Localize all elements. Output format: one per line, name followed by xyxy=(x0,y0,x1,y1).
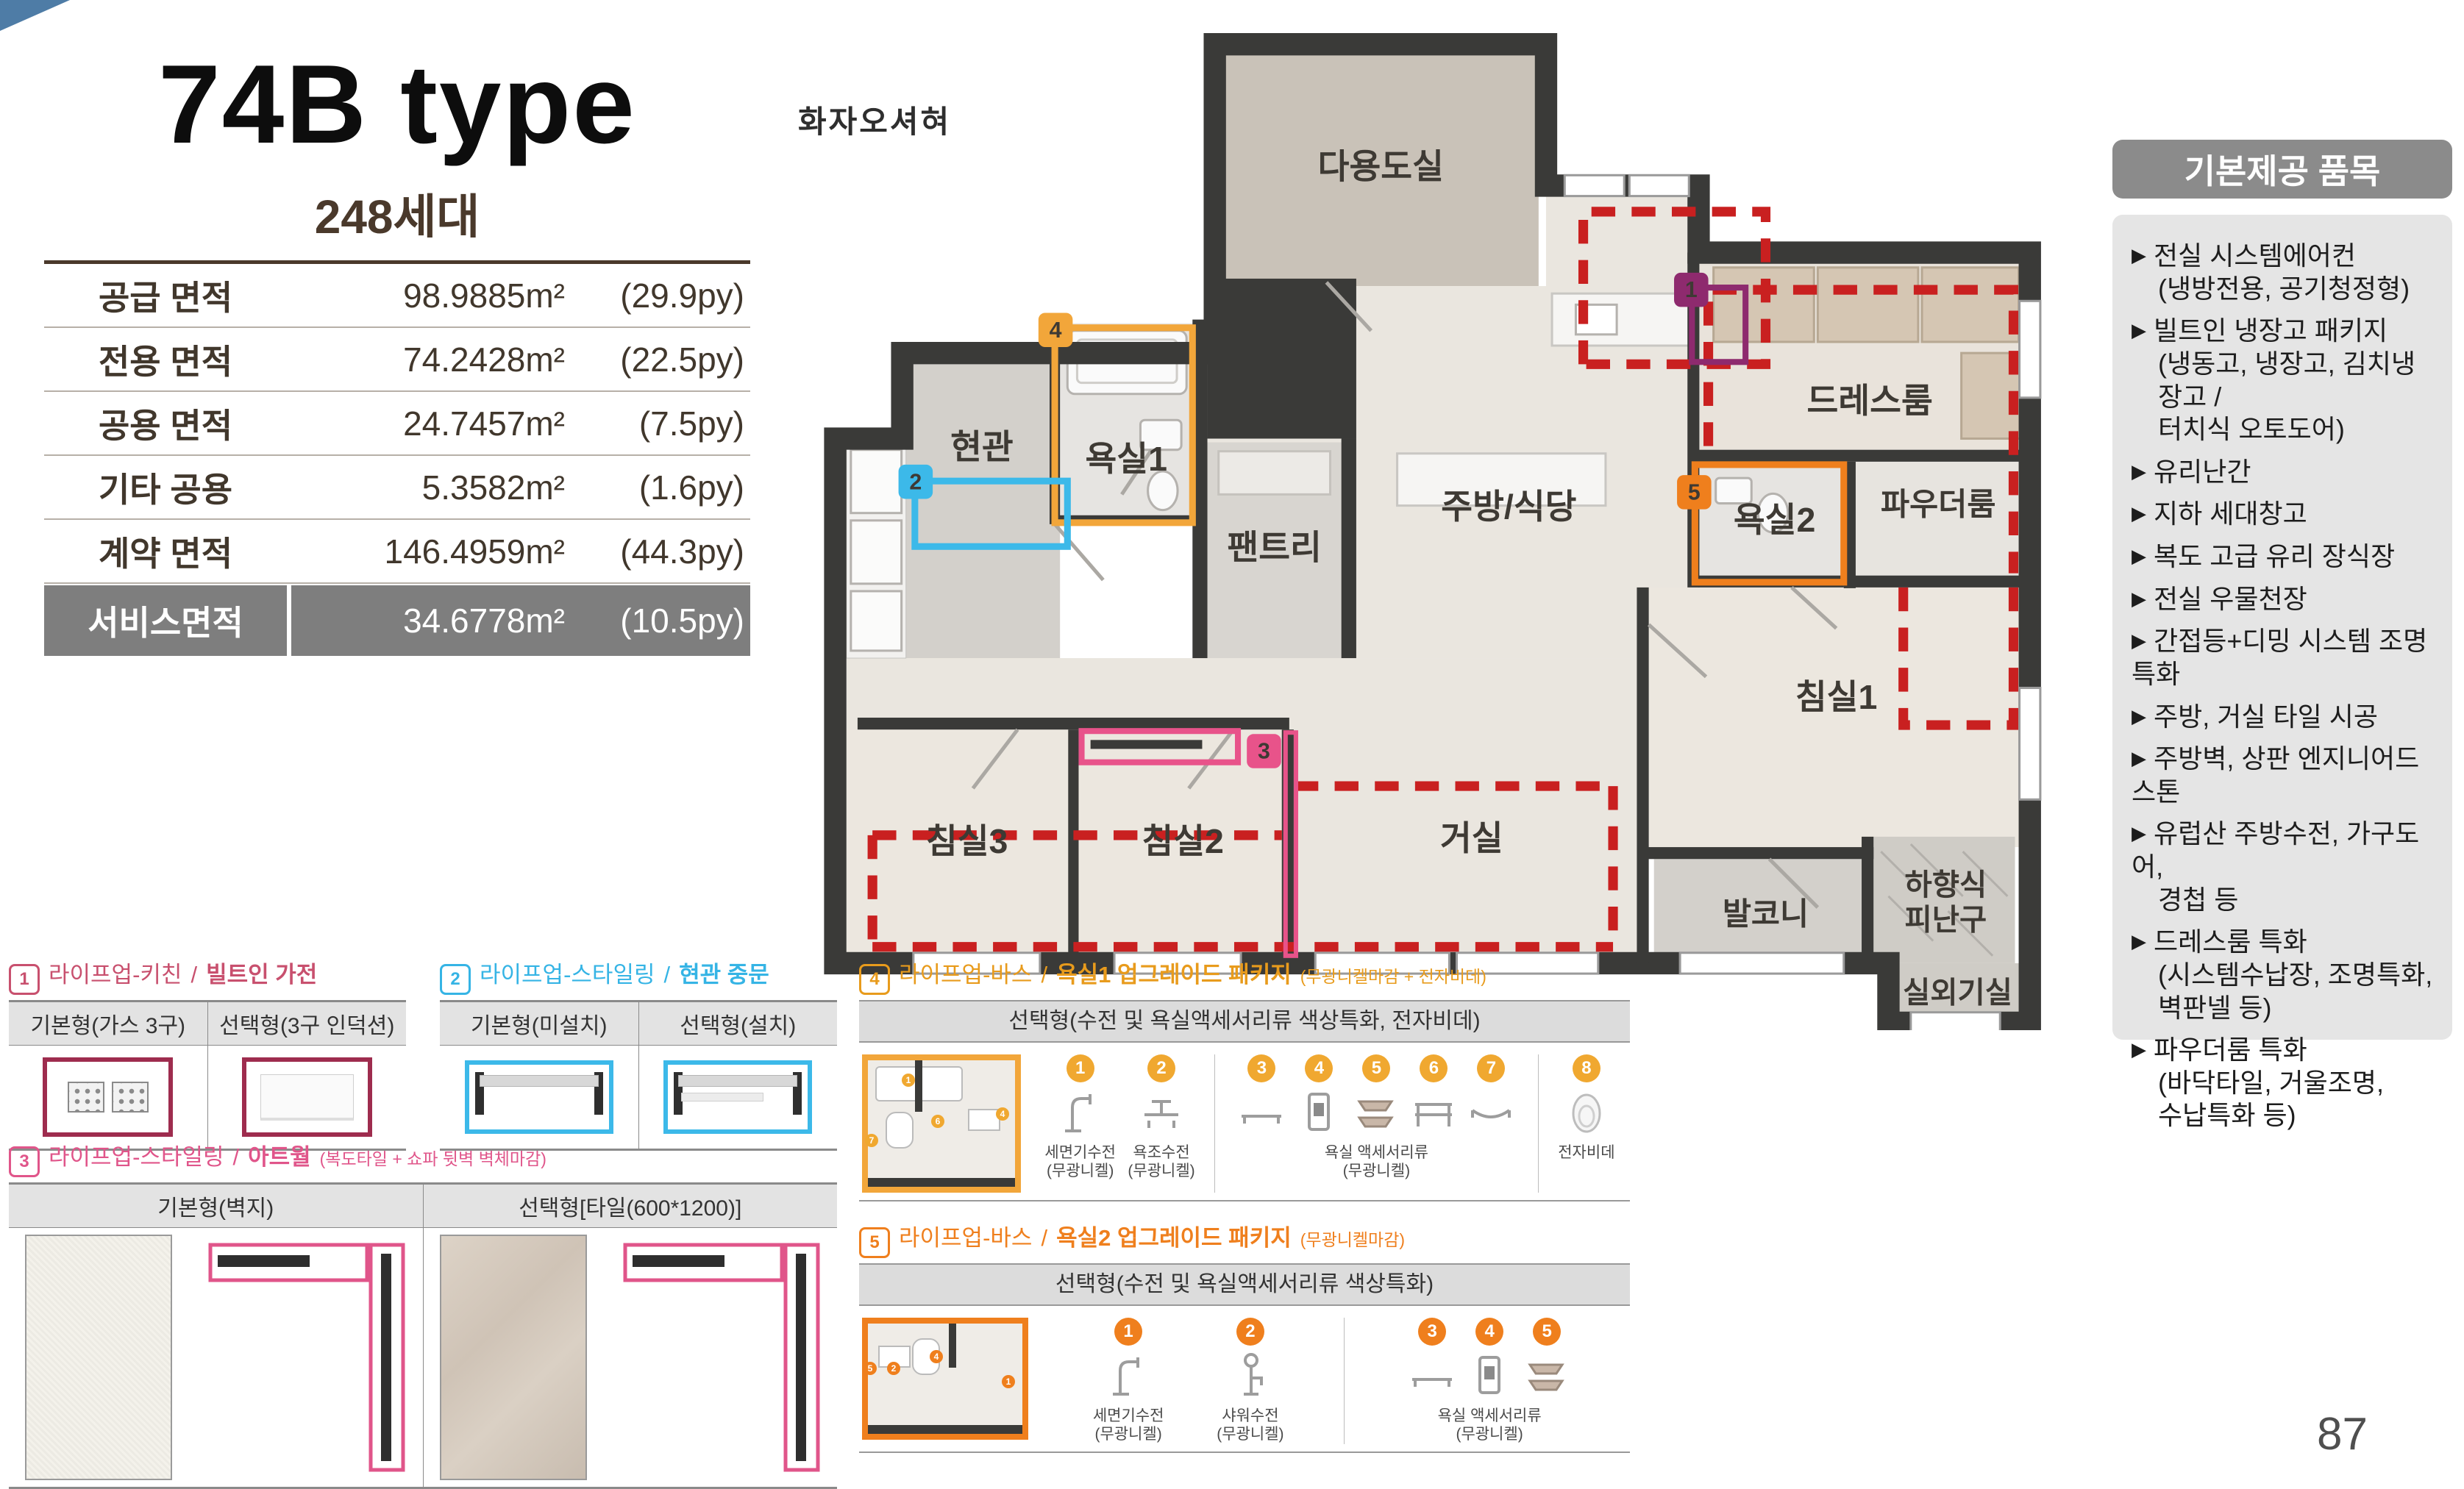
item-text: 유리난간 xyxy=(2154,457,2251,487)
tub-faucet-icon xyxy=(1134,1085,1189,1140)
option-columns: 기본형(미설치) 선택형(설치) xyxy=(440,1000,837,1046)
page-title: 74B type xyxy=(44,40,750,169)
triangle-bullet-icon: ▶ xyxy=(2132,545,2146,567)
row-label: 기타 공용 xyxy=(44,463,287,512)
section-note: (무광니켈마감 + 전자비데) xyxy=(1300,963,1486,988)
item-number: 2 xyxy=(1147,1054,1175,1082)
divider xyxy=(1538,1054,1539,1193)
item-label: 세면기수전 xyxy=(1093,1407,1164,1424)
shower-faucet-icon xyxy=(1223,1349,1278,1403)
option-images xyxy=(440,1046,837,1151)
section-header: 5 라이프업-바스 / 욕실2 업그레이드 패키지 (무광니켈마감) xyxy=(859,1219,1630,1256)
section-category: 라이프업-바스 xyxy=(899,956,1032,989)
corner-shelf-icon xyxy=(1349,1085,1403,1140)
section-category: 라이프업-키친 xyxy=(49,956,182,989)
room-label-bed1: 침실1 xyxy=(1795,678,1878,716)
room-label-bed2: 침실2 xyxy=(1142,822,1224,860)
item-number: 2 xyxy=(1236,1318,1264,1346)
section-header: 2 라이프업-스타일링 / 현관 중문 xyxy=(440,956,837,993)
row-m2: 146.4959m² xyxy=(287,532,575,571)
room-label-powder: 파우더룸 xyxy=(1881,488,1995,523)
item-label-sub: (무광니켈) xyxy=(1047,1163,1114,1179)
included-items-header: 기본제공 품목 xyxy=(2112,140,2452,199)
item-text: 수납특화 등) xyxy=(2132,1099,2433,1132)
section-category: 라이프업-스타일링 xyxy=(480,956,655,989)
basin-faucet-icon xyxy=(1053,1085,1108,1140)
bidet-icon xyxy=(1559,1085,1614,1140)
option-section-entry-door: 2 라이프업-스타일링 / 현관 중문 기본형(미설치) 선택형(설치) xyxy=(440,956,837,1151)
list-item: ▶파우더룸 특화 (바닥타일, 거울조명, 수납특화 등) xyxy=(2132,1034,2433,1132)
product-item: 2 샤워수전 (무광니켈) xyxy=(1217,1318,1283,1444)
item-number: 5 xyxy=(1533,1318,1561,1346)
item-number: 6 xyxy=(1420,1054,1448,1082)
gas-cooktop-image xyxy=(43,1057,173,1137)
badge-4: 4 xyxy=(1050,318,1062,343)
badge-2: 2 xyxy=(909,470,922,494)
item-text: 지하 세대창고 xyxy=(2154,499,2307,529)
item-number: 5 xyxy=(1362,1054,1390,1082)
item-number: 7 xyxy=(1477,1054,1505,1082)
item-text: (바닥타일, 거울조명, xyxy=(2132,1067,2433,1100)
option-section-kitchen: 1 라이프업-키친 / 빌트인 가전 기본형(가스 3구) 선택형(3구 인덕션… xyxy=(9,956,406,1151)
separator: / xyxy=(232,1144,239,1171)
list-item: ▶전실 우물천장 xyxy=(2132,583,2433,616)
table-row-service: 서비스면적 34.6778m² (10.5py) xyxy=(44,585,750,656)
section-number-badge: 3 xyxy=(9,1146,40,1177)
row-py: (10.5py) xyxy=(575,601,750,640)
section-name: 욕실1 업그레이드 패키지 xyxy=(1056,956,1292,989)
product-items: 1 세면기수전 (무광니켈) 2 욕조수전 (무광니켈) 3 xyxy=(1033,1054,1627,1193)
included-items-panel: ▶전실 시스템에어컨 (냉방전용, 공기청정형) ▶빌트인 냉장고 패키지 (냉… xyxy=(2112,215,2452,1040)
list-item: ▶주방벽, 상판 엔지니어드 스톤 xyxy=(2132,743,2433,808)
room-label-balcony: 발코니 xyxy=(1723,897,1809,932)
paper-holder-icon xyxy=(1292,1085,1346,1140)
triangle-bullet-icon: ▶ xyxy=(2132,705,2146,727)
triangle-bullet-icon: ▶ xyxy=(2132,502,2146,524)
item-text: (냉동고, 냉장고, 김치냉장고 / xyxy=(2132,348,2433,413)
product-item: 8 전자비데 xyxy=(1558,1054,1614,1163)
item-label: 욕조수전 xyxy=(1133,1144,1189,1161)
towel-bar-icon xyxy=(1234,1085,1289,1140)
room-label-bath1: 욕실1 xyxy=(1085,440,1167,478)
section-number-badge: 1 xyxy=(9,964,40,995)
option-section-artwall: 3 라이프업-스타일링 / 아트월 (복도타일 + 쇼파 뒷벽 벽체마감) 기본… xyxy=(9,1138,837,1489)
list-item: ▶전실 시스템에어컨 (냉방전용, 공기청정형) xyxy=(2132,240,2433,305)
item-label: 샤워수전 xyxy=(1222,1407,1278,1424)
item-text: 유럽산 주방수전, 가구도어, xyxy=(2132,818,2419,882)
room-label-utility: 다용도실 xyxy=(1318,147,1444,185)
section-name: 현관 중문 xyxy=(679,956,769,989)
triangle-bullet-icon: ▶ xyxy=(2132,822,2146,844)
list-item: ▶복도 고급 유리 장식장 xyxy=(2132,540,2433,574)
item-text: 복도 고급 유리 장식장 xyxy=(2154,541,2395,571)
item-text: 주방, 거실 타일 시공 xyxy=(2154,701,2378,732)
list-item: ▶유리난간 xyxy=(2132,456,2433,489)
towel-ring-icon xyxy=(1464,1085,1518,1140)
choice-bar: 선택형(수전 및 욕실액세서리류 색상특화, 전자비데) xyxy=(859,1000,1630,1043)
area-table: 공급 면적 98.9885m² (29.9py) 전용 면적 74.2428m²… xyxy=(44,260,750,656)
item-text: 터치식 오토도어) xyxy=(2132,413,2433,446)
triangle-bullet-icon: ▶ xyxy=(2132,244,2146,266)
column-basic: 기본형(가스 3구) xyxy=(9,1007,207,1040)
row-py: (7.5py) xyxy=(575,404,750,443)
accessory-group: 3 4 5 욕실 액세서리류 (무광니켈) xyxy=(1405,1318,1574,1444)
separator: / xyxy=(663,962,670,988)
bath2-plan-thumbnail: 5 2 4 1 xyxy=(862,1318,1028,1440)
room-label-living: 거실 xyxy=(1440,819,1503,857)
list-item: ▶지하 세대창고 xyxy=(2132,498,2433,531)
accessory-group: 3 4 5 6 7 xyxy=(1234,1054,1518,1181)
item-number: 3 xyxy=(1418,1318,1446,1346)
item-label-sub: (무광니켈) xyxy=(1343,1163,1410,1179)
divider xyxy=(1344,1318,1345,1444)
section-header: 1 라이프업-키친 / 빌트인 가전 xyxy=(9,956,406,993)
list-item: ▶빌트인 냉장고 패키지 (냉동고, 냉장고, 김치냉장고 / 터치식 오토도어… xyxy=(2132,315,2433,446)
triangle-bullet-icon: ▶ xyxy=(2132,588,2146,610)
table-row: 공급 면적 98.9885m² (29.9py) xyxy=(44,264,750,328)
table-row: 기타 공용 5.3582m² (1.6py) xyxy=(44,456,750,520)
item-label-sub: (무광니켈) xyxy=(1456,1426,1523,1443)
row-m2: 5.3582m² xyxy=(287,468,575,507)
separator: / xyxy=(1041,962,1047,988)
artwall-diagram-basic xyxy=(207,1236,406,1479)
triangle-bullet-icon: ▶ xyxy=(2132,460,2146,482)
item-text: 벽판넬 등) xyxy=(2132,992,2433,1025)
item-number: 1 xyxy=(1114,1318,1142,1346)
floor-plan: 1 2 3 4 5 다용도실 현관 욕실1 팬트리 주방/식당 드레스룸 파우더… xyxy=(802,33,2045,1030)
room-label-entrance: 현관 xyxy=(950,428,1014,466)
room-label-escape-1: 하향식 xyxy=(1905,868,1987,901)
section-name: 빌트인 가전 xyxy=(206,956,317,989)
item-label: 욕실 액세서리류 xyxy=(1325,1144,1428,1161)
brochure-page: 74B type 248세대 공급 면적 98.9885m² (29.9py) … xyxy=(0,0,2464,1489)
bath1-plan-thumbnail: 1 4 7 6 xyxy=(862,1054,1021,1193)
row-label: 공급 면적 xyxy=(44,271,287,320)
section-category: 라이프업-바스 xyxy=(899,1219,1032,1252)
tile-swatch xyxy=(440,1235,587,1480)
shelf-rack-icon xyxy=(1406,1085,1461,1140)
item-text: 파우더룸 특화 xyxy=(2154,1035,2307,1065)
room-label-pantry: 팬트리 xyxy=(1227,528,1321,566)
section-category: 라이프업-스타일링 xyxy=(49,1138,224,1171)
option-images xyxy=(9,1228,837,1489)
item-text: 전실 우물천장 xyxy=(2154,584,2307,614)
row-label: 계약 면적 xyxy=(44,527,287,576)
list-item: ▶드레스룸 특화 (시스템수납장, 조명특화, 벽판넬 등) xyxy=(2132,926,2433,1024)
badge-3: 3 xyxy=(1258,740,1270,764)
paper-holder-icon xyxy=(1462,1349,1517,1403)
row-py: (22.5py) xyxy=(575,340,750,379)
item-number: 4 xyxy=(1305,1054,1333,1082)
section-header: 3 라이프업-스타일링 / 아트월 (복도타일 + 쇼파 뒷벽 벽체마감) xyxy=(9,1138,837,1175)
row-py: (29.9py) xyxy=(575,276,750,315)
list-item: ▶간접등+디밍 시스템 조명특화 xyxy=(2132,625,2433,690)
item-label-sub: (무광니켈) xyxy=(1094,1426,1161,1443)
table-row: 전용 면적 74.2428m² (22.5py) xyxy=(44,328,750,392)
artwall-diagram-choice xyxy=(622,1236,821,1479)
triangle-bullet-icon: ▶ xyxy=(2132,1038,2146,1060)
item-number: 1 xyxy=(1067,1054,1094,1082)
list-item: ▶유럽산 주방수전, 가구도어, 경첩 등 xyxy=(2132,818,2433,916)
item-label: 세면기수전 xyxy=(1044,1144,1116,1161)
option-columns: 기본형(벽지) 선택형[타일(600*1200)] xyxy=(9,1182,837,1228)
item-number: 8 xyxy=(1573,1054,1600,1082)
section-note: (무광니켈마감) xyxy=(1300,1226,1405,1251)
separator: / xyxy=(1041,1225,1047,1251)
wallpaper-swatch xyxy=(25,1235,172,1480)
badge-5: 5 xyxy=(1688,480,1701,504)
section-number-badge: 5 xyxy=(859,1227,890,1258)
row-py: (44.3py) xyxy=(575,532,750,571)
unit-summary: 74B type 248세대 공급 면적 98.9885m² (29.9py) … xyxy=(44,40,750,656)
row-label: 전용 면적 xyxy=(44,335,287,384)
room-label-kitchen: 주방/식당 xyxy=(1441,488,1576,526)
choice-bar: 선택형(수전 및 욕실액세서리류 색상특화) xyxy=(859,1263,1630,1306)
list-item: ▶주방, 거실 타일 시공 xyxy=(2132,701,2433,734)
upgrade-items-row: 5 2 4 1 1 세면기수전 (무광니켈) 2 샤워수전 xyxy=(859,1306,1630,1453)
upgrade-items-row: 1 4 7 6 1 세면기수전 (무광니켈) 2 욕조수전 xyxy=(859,1043,1630,1201)
column-basic: 기본형(벽지) xyxy=(9,1190,423,1222)
column-choice: 선택형(설치) xyxy=(638,1002,838,1045)
triangle-bullet-icon: ▶ xyxy=(2132,319,2146,341)
towel-bar-icon xyxy=(1405,1349,1459,1403)
corner-shelf-icon xyxy=(1520,1349,1574,1403)
room-label-dressroom: 드레스룸 xyxy=(1807,382,1933,420)
table-row: 공용 면적 24.7457m² (7.5py) xyxy=(44,392,750,456)
column-choice: 선택형(3구 인덕션) xyxy=(207,1002,407,1045)
section-number-badge: 2 xyxy=(440,964,471,995)
row-m2: 34.6778m² xyxy=(291,601,575,640)
room-label-escape-2: 피난구 xyxy=(1905,902,1987,936)
page-number: 87 xyxy=(2317,1408,2368,1460)
item-text: (냉방전용, 공기청정형) xyxy=(2132,273,2433,306)
triangle-bullet-icon: ▶ xyxy=(2132,629,2146,651)
item-text: 드레스룸 특화 xyxy=(2154,926,2307,957)
row-m2: 24.7457m² xyxy=(287,404,575,443)
product-item: 2 욕조수전 (무광니켈) xyxy=(1128,1054,1194,1181)
divider xyxy=(1214,1054,1215,1193)
item-label: 욕실 액세서리류 xyxy=(1438,1407,1542,1424)
basin-faucet-icon xyxy=(1101,1349,1156,1403)
row-py: (1.6py) xyxy=(575,468,750,507)
product-items: 1 세면기수전 (무광니켈) 2 샤워수전 (무광니켈) 3 xyxy=(1040,1318,1627,1444)
row-label: 공용 면적 xyxy=(44,399,287,448)
row-m2: 74.2428m² xyxy=(287,340,575,379)
item-text: 전실 시스템에어컨 xyxy=(2154,240,2356,271)
item-label-sub: (무광니켈) xyxy=(1217,1426,1283,1443)
option-columns: 기본형(가스 3구) 선택형(3구 인덕션) xyxy=(9,1000,406,1046)
product-item: 1 세면기수전 (무광니켈) xyxy=(1044,1054,1116,1181)
item-number: 3 xyxy=(1247,1054,1275,1082)
item-text: 경첩 등 xyxy=(2132,884,2433,917)
induction-cooktop-image xyxy=(242,1057,372,1137)
item-text: 간접등+디밍 시스템 조명특화 xyxy=(2132,626,2427,689)
badge-1: 1 xyxy=(1685,278,1698,302)
option-section-bath1: 4 라이프업-바스 / 욕실1 업그레이드 패키지 (무광니켈마감 + 전자비데… xyxy=(859,956,1630,1201)
section-name: 아트월 xyxy=(248,1138,311,1171)
room-label-bath2: 욕실2 xyxy=(1734,501,1816,539)
row-label: 서비스면적 xyxy=(44,585,287,656)
item-text: 주방벽, 상판 엔지니어드 스톤 xyxy=(2132,743,2419,807)
column-choice: 선택형[타일(600*1200)] xyxy=(423,1185,838,1227)
column-basic: 기본형(미설치) xyxy=(440,1007,638,1040)
separator: / xyxy=(191,962,197,988)
section-number-badge: 4 xyxy=(859,964,890,995)
room-label-bed3: 침실3 xyxy=(926,822,1008,860)
triangle-bullet-icon: ▶ xyxy=(2132,930,2146,952)
room-label-outdoor: 실외기실 xyxy=(1903,976,2012,1010)
corner-accent xyxy=(0,0,70,31)
unit-count: 248세대 xyxy=(44,179,750,247)
section-header: 4 라이프업-바스 / 욕실1 업그레이드 패키지 (무광니켈마감 + 전자비데… xyxy=(859,956,1630,993)
item-label-sub: (무광니켈) xyxy=(1128,1163,1194,1179)
item-text: (시스템수납장, 조명특화, xyxy=(2132,959,2433,992)
item-number: 4 xyxy=(1475,1318,1503,1346)
section-name: 욕실2 업그레이드 패키지 xyxy=(1056,1219,1292,1252)
door-none-image xyxy=(465,1060,613,1134)
door-installed-image xyxy=(663,1060,812,1134)
item-label: 전자비데 xyxy=(1558,1144,1614,1161)
option-section-bath2: 5 라이프업-바스 / 욕실2 업그레이드 패키지 (무광니켈마감) 선택형(수… xyxy=(859,1219,1630,1453)
option-images xyxy=(9,1046,406,1151)
product-item: 1 세면기수전 (무광니켈) xyxy=(1093,1318,1164,1444)
triangle-bullet-icon: ▶ xyxy=(2132,747,2146,769)
item-text: 빌트인 냉장고 패키지 xyxy=(2154,315,2388,346)
table-row: 계약 면적 146.4959m² (44.3py) xyxy=(44,520,750,584)
section-note: (복도타일 + 쇼파 뒷벽 벽체마감) xyxy=(320,1145,546,1170)
row-m2: 98.9885m² xyxy=(287,276,575,315)
